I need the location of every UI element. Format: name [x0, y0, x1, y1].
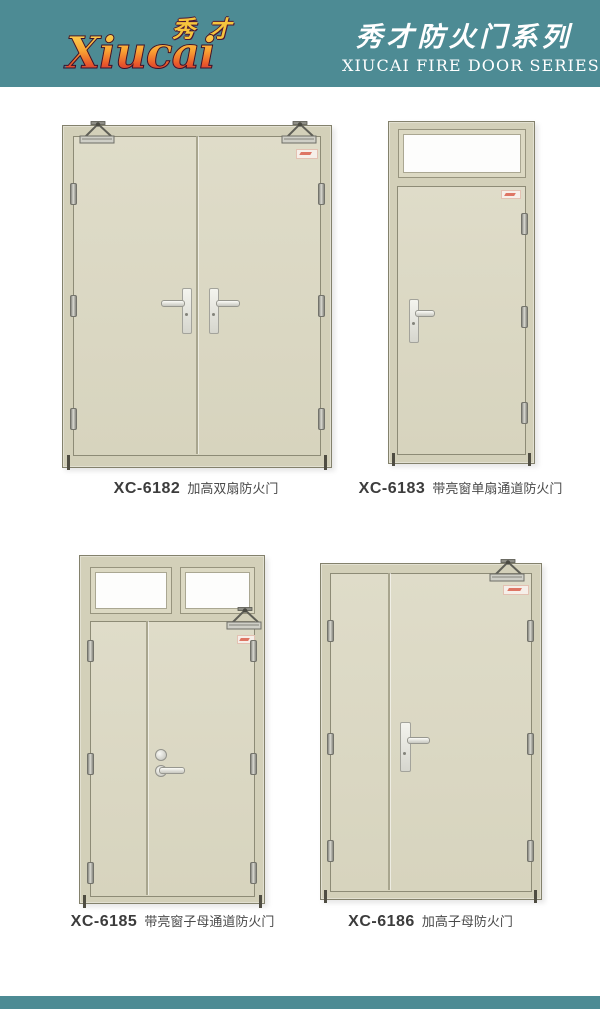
frame-leg [324, 455, 327, 470]
door-handle [415, 310, 435, 317]
handle-plate [409, 299, 419, 343]
product-model: XC-6182 [114, 480, 181, 498]
door-hinge [527, 733, 534, 755]
door-hinge [318, 183, 325, 205]
frame-leg [259, 895, 262, 908]
door-hinge [521, 306, 528, 328]
door-hinge [250, 862, 257, 884]
keyhole [212, 313, 215, 316]
product-name: 带亮窗单扇通道防火门 [432, 478, 562, 497]
product-model: XC-6185 [71, 913, 138, 931]
handle-plate [182, 288, 192, 334]
product-model: XC-6183 [359, 480, 426, 498]
door-handle [161, 300, 185, 307]
catalog-page: 秀才 Xiucai 秀才防火门系列 XIUCAI FIRE DOOR SERIE… [0, 0, 600, 1009]
page-footer [0, 996, 600, 1009]
door-closer [489, 559, 525, 583]
door-hinge [327, 840, 334, 862]
frame-leg [528, 453, 531, 466]
door-hinge [70, 408, 77, 430]
door-hinge [87, 753, 94, 775]
door-hinge [521, 213, 528, 235]
lock-cylinder [155, 749, 167, 761]
door-closer [281, 121, 317, 145]
door-hinge [327, 733, 334, 755]
door-handle [407, 737, 430, 744]
frame-leg [392, 453, 395, 466]
product-caption-xc6182: XC-6182 加高双扇防火门 [62, 478, 330, 498]
door-leaves [330, 573, 532, 892]
product-name: 带亮窗子母通道防火门 [144, 911, 274, 930]
keyhole [403, 752, 406, 755]
door-hinge [250, 640, 257, 662]
frame-leg [83, 895, 86, 908]
product-model: XC-6186 [348, 913, 415, 931]
door-hinge [70, 295, 77, 317]
door-center-stile [146, 621, 148, 895]
series-title: 秀才防火门系列 XIUCAI FIRE DOOR SERIES [342, 15, 586, 75]
door-hinge [87, 862, 94, 884]
keyhole [185, 313, 188, 316]
door-hinge [527, 840, 534, 862]
product-caption-xc6185: XC-6185 带亮窗子母通道防火门 [75, 911, 270, 931]
series-title-chinese: 秀才防火门系列 [342, 15, 586, 54]
door-closer [226, 607, 262, 631]
door-closer [79, 121, 115, 145]
door-hinge [527, 620, 534, 642]
handle-plate [400, 722, 411, 772]
door-hinge [87, 640, 94, 662]
door-handle [159, 767, 185, 774]
door-hinge [70, 183, 77, 205]
series-title-english: XIUCAI FIRE DOOR SERIES [342, 56, 586, 75]
door-hinge [327, 620, 334, 642]
product-caption-xc6183: XC-6183 带亮窗单扇通道防火门 [363, 478, 558, 498]
frame-leg [324, 890, 327, 903]
handle-plate [209, 288, 219, 334]
product-caption-xc6186: XC-6186 加高子母防火门 [333, 911, 528, 931]
product-name: 加高子母防火门 [422, 911, 513, 930]
door-hinge [318, 295, 325, 317]
transom-window [398, 129, 526, 178]
door-center-stile [388, 573, 390, 890]
door-hinge [521, 402, 528, 424]
door-leaves [90, 621, 255, 897]
door-hinge [250, 753, 257, 775]
fire-rating-label [296, 149, 318, 159]
brand-logo-latin: Xiucai [66, 28, 215, 79]
brand-logo: 秀才 Xiucai [66, 8, 276, 84]
frame-leg [534, 890, 537, 903]
frame-leg [67, 455, 70, 470]
keyhole [412, 322, 415, 325]
door-center-stile [196, 136, 198, 454]
fire-rating-label [501, 190, 521, 199]
transom-window [90, 567, 172, 614]
page-header: 秀才 Xiucai 秀才防火门系列 XIUCAI FIRE DOOR SERIE… [0, 0, 600, 87]
fire-rating-label [503, 585, 529, 595]
door-handle [216, 300, 240, 307]
door-hinge [318, 408, 325, 430]
product-name: 加高双扇防火门 [187, 478, 278, 497]
